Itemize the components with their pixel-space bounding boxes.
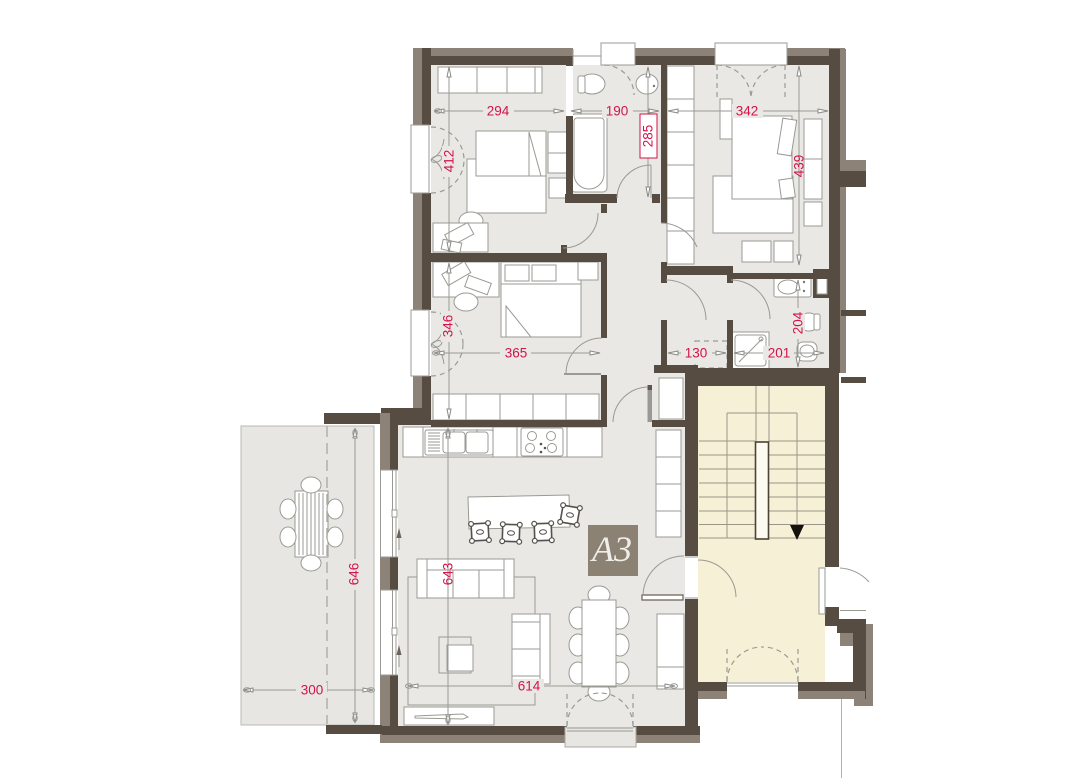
svg-text:614: 614 <box>518 679 541 694</box>
svg-text:285: 285 <box>641 125 656 148</box>
svg-text:294: 294 <box>487 104 510 119</box>
svg-text:A3: A3 <box>590 529 632 569</box>
svg-text:190: 190 <box>606 104 629 119</box>
svg-text:300: 300 <box>301 683 324 698</box>
svg-text:439: 439 <box>792 155 807 178</box>
svg-text:342: 342 <box>736 104 759 119</box>
svg-text:365: 365 <box>505 346 528 361</box>
svg-text:646: 646 <box>347 563 362 586</box>
svg-text:204: 204 <box>791 311 806 334</box>
svg-text:643: 643 <box>441 563 456 586</box>
svg-text:201: 201 <box>768 346 791 361</box>
svg-text:412: 412 <box>442 150 457 173</box>
svg-text:346: 346 <box>441 315 456 338</box>
svg-text:130: 130 <box>685 346 708 361</box>
